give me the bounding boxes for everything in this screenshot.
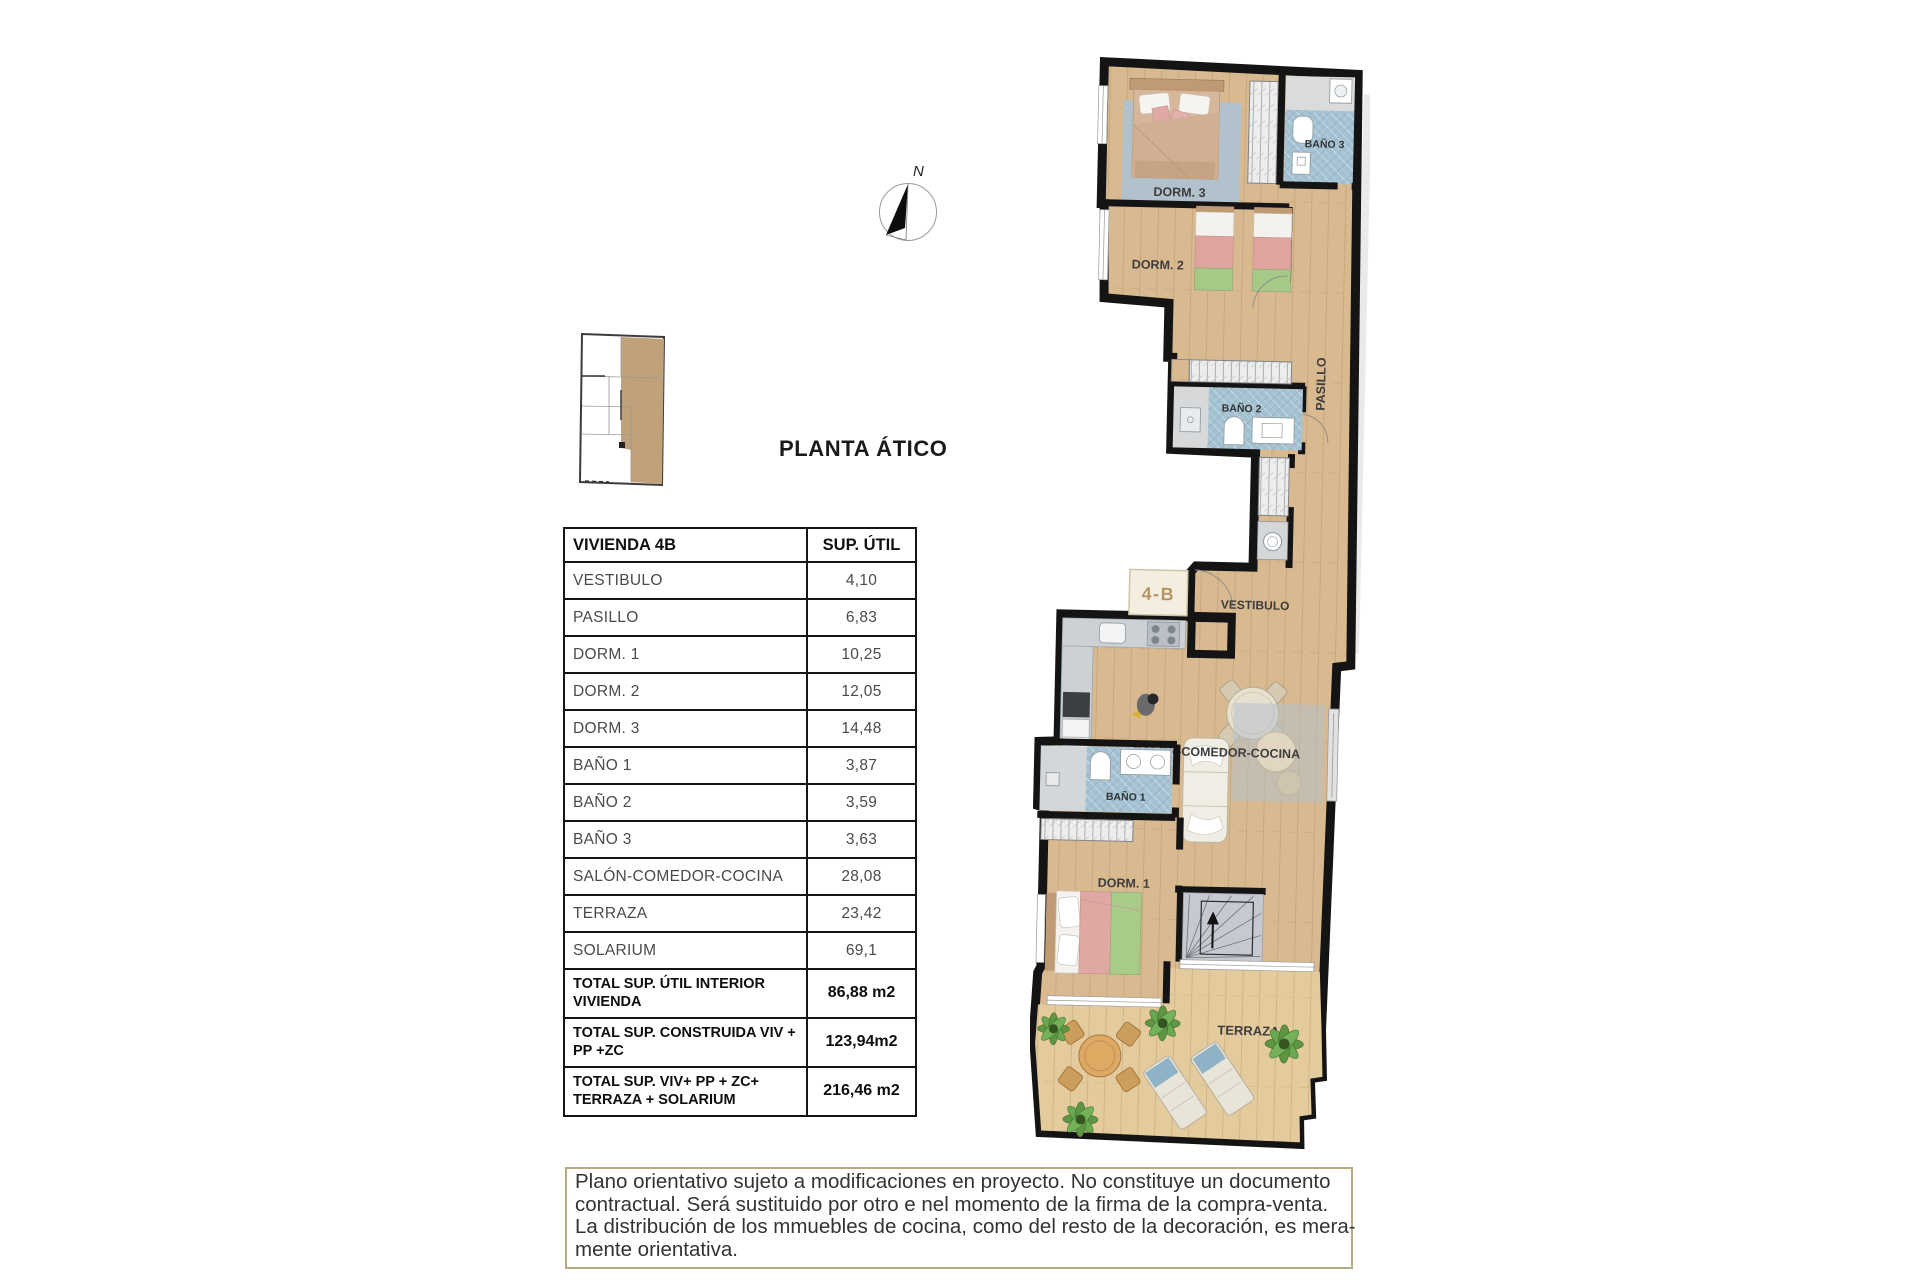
total-value: 216,46 m2: [807, 1067, 916, 1116]
row-value: 12,05: [807, 673, 916, 710]
total-label: TOTAL SUP. ÚTIL INTERIOR VIVIENDA: [564, 969, 807, 1018]
row-value: 14,48: [807, 710, 916, 747]
row-value: 10,25: [807, 636, 916, 673]
table-total-row: TOTAL SUP. CONSTRUIDA VIV + PP +ZC123,94…: [564, 1018, 916, 1067]
wardrobe: [1248, 81, 1280, 184]
row-label: BAÑO 3: [564, 821, 807, 858]
oven-icon: [1063, 692, 1091, 718]
bathroom-3: BAÑO 3: [1284, 76, 1355, 185]
table-row: VESTIBULO4,10: [564, 562, 916, 599]
row-value: 23,42: [807, 895, 916, 932]
toilet-icon: [1224, 417, 1245, 445]
pouf-icon: [1277, 771, 1302, 796]
row-label: DORM. 2: [564, 673, 807, 710]
compass-needle: [886, 184, 908, 235]
table-row: DORM. 110,25: [564, 636, 916, 673]
sink-icon: [1099, 623, 1125, 644]
row-label: TERRAZA: [564, 895, 807, 932]
room-label-vestibulo: VESTIBULO: [1221, 597, 1290, 613]
room-label-dorm2: DORM. 2: [1132, 257, 1184, 272]
disclaimer-line: Plano orientativo sujeto a modificacione…: [575, 1171, 1343, 1194]
row-label: PASILLO: [564, 599, 807, 636]
row-label: SALÓN-COMEDOR-COCINA: [564, 858, 807, 895]
table-row: DORM. 212,05: [564, 673, 916, 710]
row-value: 69,1: [807, 932, 916, 969]
location-thumbnail: [575, 330, 671, 488]
table-row: BAÑO 33,63: [564, 821, 916, 858]
stairs-icon: [1182, 893, 1264, 964]
row-value: 6,83: [807, 599, 916, 636]
wardrobe: [1041, 818, 1133, 841]
row-value: 3,87: [807, 747, 916, 784]
toilet-icon: [1090, 752, 1111, 780]
table-row: BAÑO 23,59: [564, 784, 916, 821]
row-value: 3,59: [807, 784, 916, 821]
unit-badge-label: 4-B: [1141, 584, 1175, 605]
page-title: PLANTA ÁTICO: [779, 436, 948, 462]
total-value: 123,94m2: [807, 1018, 916, 1067]
room-label-pasillo: PASILLO: [1314, 357, 1329, 411]
area-table: VIVIENDA 4B SUP. ÚTIL VESTIBULO4,10 PASI…: [563, 527, 917, 1117]
table-header-name: VIVIENDA 4B: [564, 528, 807, 562]
bed-icon: [1045, 891, 1142, 975]
compass-north-label: N: [913, 163, 924, 180]
stove-icon: [1147, 622, 1180, 647]
room-label-bano2: BAÑO 2: [1222, 401, 1262, 415]
wardrobe: [1189, 360, 1291, 384]
compass-icon: N: [855, 140, 965, 260]
table-row: DORM. 314,48: [564, 710, 916, 747]
table-row: BAÑO 13,87: [564, 747, 916, 784]
disclaimer-box: Plano orientativo sujeto a modificacione…: [565, 1167, 1353, 1269]
row-label: VESTIBULO: [564, 562, 807, 599]
room-label-dorm3: DORM. 3: [1153, 185, 1205, 200]
row-label: DORM. 1: [564, 636, 807, 673]
row-value: 28,08: [807, 858, 916, 895]
row-value: 3,63: [807, 821, 916, 858]
double-bed-icon: [1128, 78, 1224, 179]
table-row: SOLARIUM69,1: [564, 932, 916, 969]
total-label: TOTAL SUP. VIV+ PP + ZC+ TERRAZA + SOLAR…: [564, 1067, 807, 1116]
washing-machine-icon: [1257, 521, 1288, 560]
unit-badge: 4-B: [1129, 569, 1188, 615]
row-label: DORM. 3: [564, 710, 807, 747]
total-value: 86,88 m2: [807, 969, 916, 1018]
table-row: TERRAZA23,42: [564, 895, 916, 932]
floor-plan: DORM. 3 BAÑO 3: [1030, 50, 1370, 1170]
disclaimer-line: mente orientativa.: [575, 1239, 1343, 1262]
room-label-bano1: BAÑO 1: [1106, 790, 1146, 804]
total-label: TOTAL SUP. CONSTRUIDA VIV + PP +ZC: [564, 1018, 807, 1067]
table-header-row: VIVIENDA 4B SUP. ÚTIL: [564, 528, 916, 562]
room-label-dorm1: DORM. 1: [1098, 876, 1150, 891]
room-label-bano3: BAÑO 3: [1305, 137, 1345, 151]
bathroom-1: BAÑO 1: [1039, 745, 1172, 813]
closet: [1258, 457, 1289, 516]
row-label: BAÑO 1: [564, 747, 807, 784]
row-value: 4,10: [807, 562, 916, 599]
bathroom-2: BAÑO 2: [1173, 386, 1303, 450]
row-label: BAÑO 2: [564, 784, 807, 821]
table-row: SALÓN-COMEDOR-COCINA28,08: [564, 858, 916, 895]
disclaimer-line: contractual. Será sustituido por otro e …: [575, 1194, 1343, 1217]
disclaimer-line: La distribución de los mmuebles de cocin…: [575, 1216, 1343, 1239]
table-header-unit: SUP. ÚTIL: [807, 528, 916, 562]
table-total-row: TOTAL SUP. VIV+ PP + ZC+ TERRAZA + SOLAR…: [564, 1067, 916, 1116]
row-label: SOLARIUM: [564, 932, 807, 969]
table-total-row: TOTAL SUP. ÚTIL INTERIOR VIVIENDA86,88 m…: [564, 969, 916, 1018]
table-row: PASILLO6,83: [564, 599, 916, 636]
